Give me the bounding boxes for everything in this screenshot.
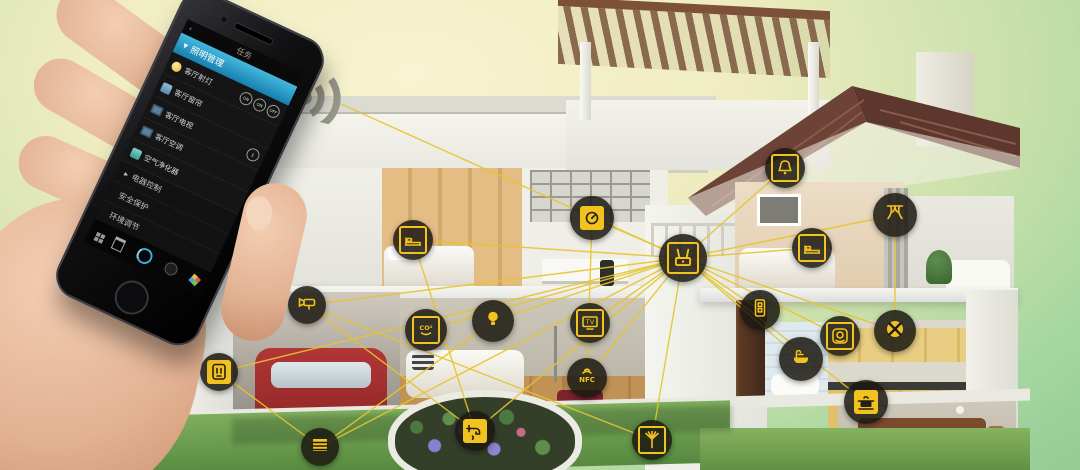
side-lawn <box>700 428 1030 470</box>
front-door <box>736 300 767 400</box>
potted-plant <box>926 250 952 284</box>
bathroom <box>765 322 828 402</box>
thumb-nail <box>246 196 272 230</box>
device-control-button[interactable]: ‖ <box>244 146 261 163</box>
window-curtain <box>884 188 908 290</box>
floor-lamp <box>554 326 557 382</box>
front-camera <box>219 14 230 25</box>
flower-vase <box>876 406 884 414</box>
flower-vase <box>956 406 964 414</box>
tv-mini <box>150 104 164 117</box>
nav-voice-icon[interactable] <box>162 260 179 277</box>
purifier-mini <box>129 147 142 160</box>
master-bedroom <box>735 182 903 290</box>
curtain-mini <box>160 81 173 94</box>
chevron-down-icon: ▾ <box>181 41 189 52</box>
nav-calendar-icon[interactable] <box>111 236 126 252</box>
nav-grid-icon[interactable] <box>95 232 100 237</box>
sitting-room <box>908 196 1014 300</box>
nav-apps-icon[interactable] <box>188 273 201 286</box>
tv-mini <box>140 125 154 138</box>
home-button[interactable] <box>109 275 154 320</box>
device-control-button[interactable]: OFF <box>265 103 282 120</box>
smart-home-scene: TVNFCCO² ‹ 任务 ▾ 照明管理 客厅射灯 ONONOFF 客厅窗帘 <box>0 0 1080 470</box>
bulb-mini <box>170 60 183 73</box>
chevron-right-icon: ▸ <box>123 169 130 179</box>
nav-sync-icon[interactable] <box>133 245 154 266</box>
